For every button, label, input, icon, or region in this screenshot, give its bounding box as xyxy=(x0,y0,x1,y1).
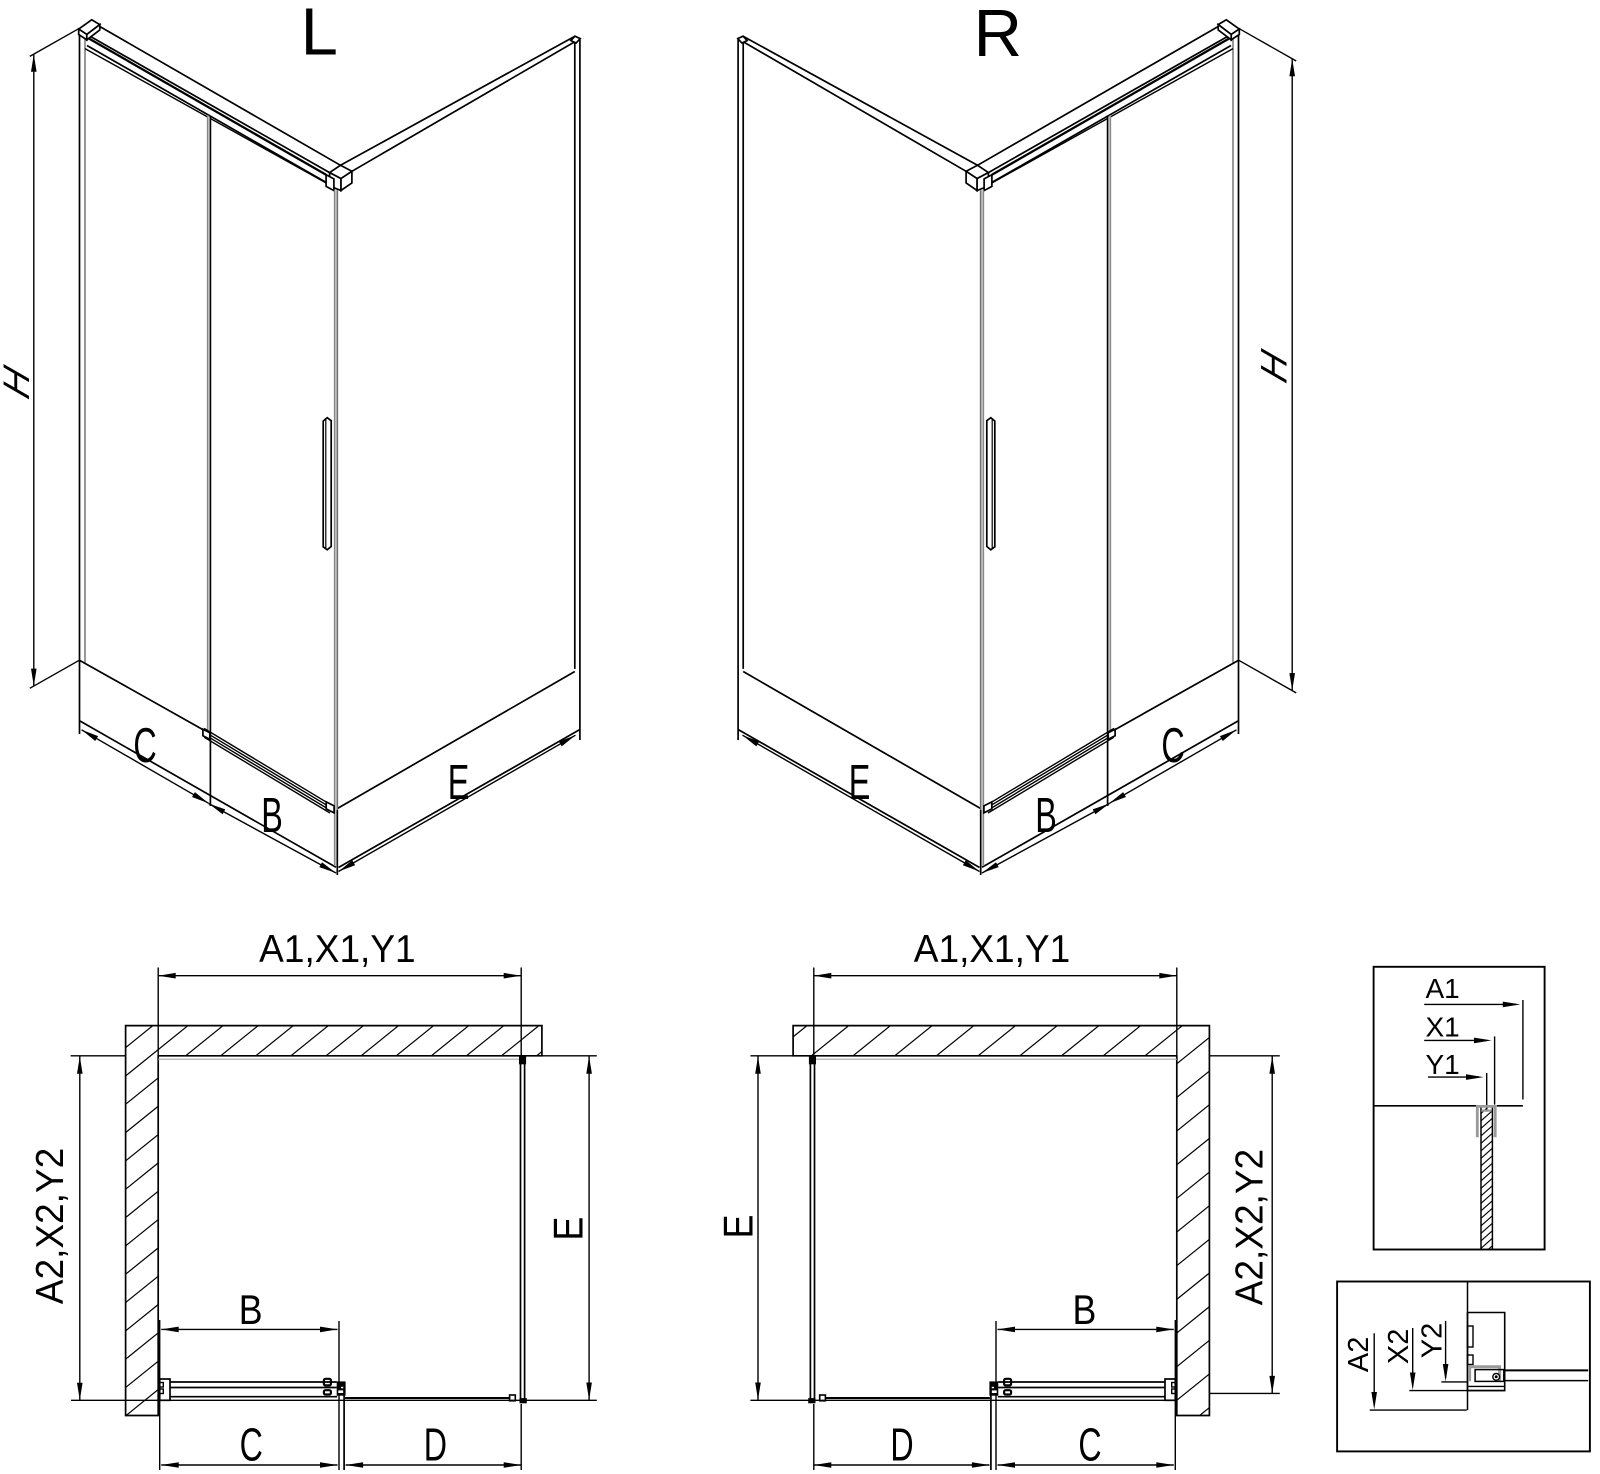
svg-text:B: B xyxy=(1035,787,1057,842)
svg-text:A1,X1,Y1: A1,X1,Y1 xyxy=(259,928,415,971)
svg-text:E: E xyxy=(546,1217,592,1241)
svg-text:C: C xyxy=(1161,717,1184,772)
svg-text:X2: X2 xyxy=(1383,1329,1415,1364)
svg-text:Y1: Y1 xyxy=(1425,1049,1459,1080)
svg-text:X1: X1 xyxy=(1425,1011,1459,1042)
svg-text:A2: A2 xyxy=(1343,1337,1375,1372)
svg-text:D: D xyxy=(424,1420,447,1471)
svg-text:Y2: Y2 xyxy=(1417,1323,1449,1358)
svg-text:R: R xyxy=(974,0,1022,71)
svg-text:B: B xyxy=(261,787,283,842)
svg-text:A1: A1 xyxy=(1425,973,1459,1004)
svg-text:E: E xyxy=(448,754,470,809)
svg-text:D: D xyxy=(890,1420,913,1471)
svg-text:E: E xyxy=(849,754,871,809)
svg-text:B: B xyxy=(1072,1287,1096,1333)
svg-text:A2,X2,Y2: A2,X2,Y2 xyxy=(29,1148,72,1304)
svg-text:A2,X2,Y2: A2,X2,Y2 xyxy=(1228,1149,1271,1305)
svg-text:C: C xyxy=(133,717,156,772)
svg-text:C: C xyxy=(1078,1420,1101,1471)
svg-text:B: B xyxy=(239,1287,263,1333)
svg-text:L: L xyxy=(301,0,338,70)
svg-text:C: C xyxy=(240,1420,263,1471)
svg-text:E: E xyxy=(716,1215,762,1239)
svg-text:A1,X1,Y1: A1,X1,Y1 xyxy=(914,928,1070,971)
